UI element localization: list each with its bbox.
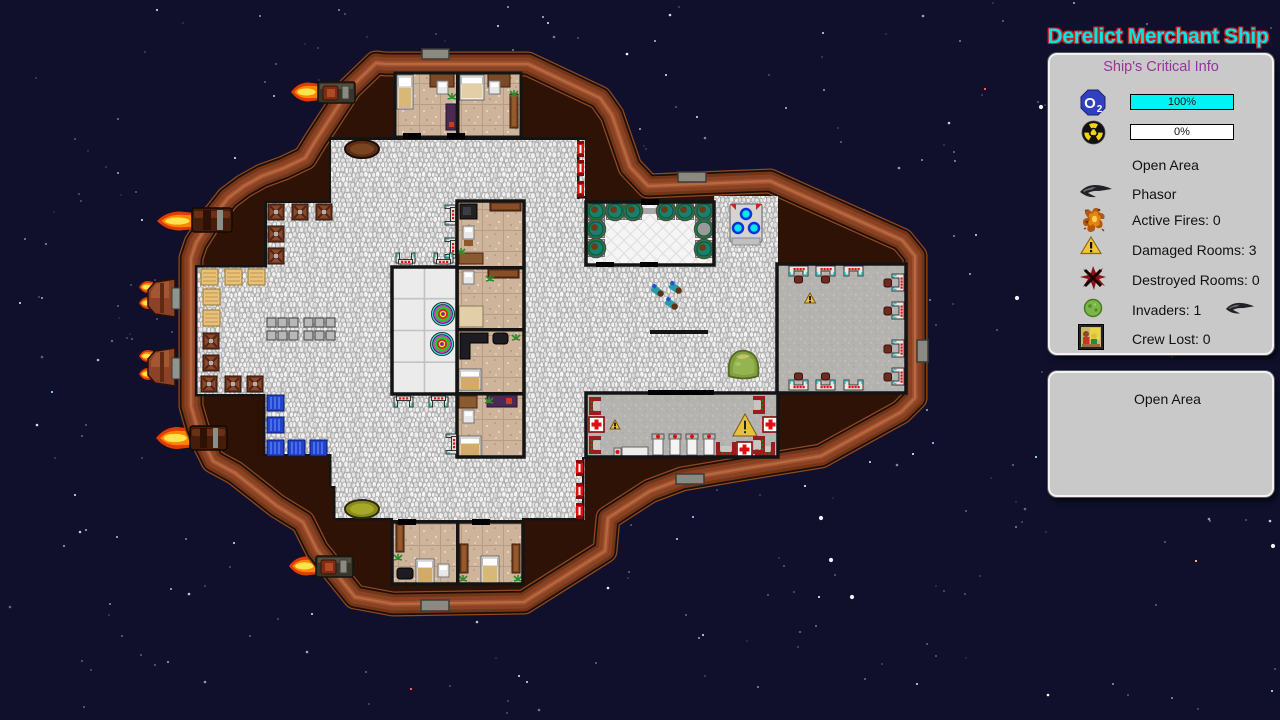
svg-text:O: O (1084, 95, 1096, 112)
svg-text:2: 2 (1097, 104, 1103, 115)
